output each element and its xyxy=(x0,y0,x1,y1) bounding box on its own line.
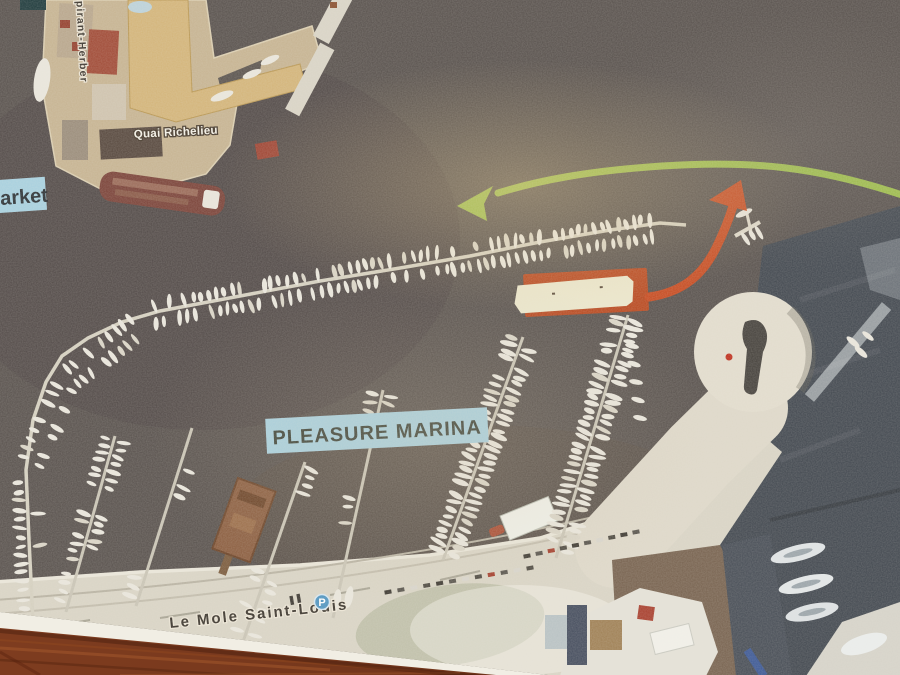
market-label-text: arket xyxy=(0,185,49,210)
satellite-map: arket PLEASURE MARINA Quai Richelieu spi… xyxy=(0,0,900,675)
dark-object xyxy=(20,0,46,10)
parking-icon-letter: P xyxy=(318,597,325,609)
marina-map-photo: arket PLEASURE MARINA Quai Richelieu spi… xyxy=(0,0,900,675)
pier-detail xyxy=(330,2,337,8)
basin xyxy=(545,615,567,649)
dark-strip xyxy=(567,605,587,665)
map-scene: arket PLEASURE MARINA Quai Richelieu spi… xyxy=(0,0,900,675)
red-roof xyxy=(637,605,655,621)
building xyxy=(62,120,88,160)
building-roof xyxy=(60,20,70,28)
building xyxy=(92,84,126,120)
market-label: arket xyxy=(0,177,49,214)
small-boat xyxy=(128,1,152,13)
flash-glare xyxy=(150,270,710,610)
red-roof-building xyxy=(87,29,119,75)
courtyard xyxy=(590,620,622,650)
red-marker-dot xyxy=(726,354,733,361)
